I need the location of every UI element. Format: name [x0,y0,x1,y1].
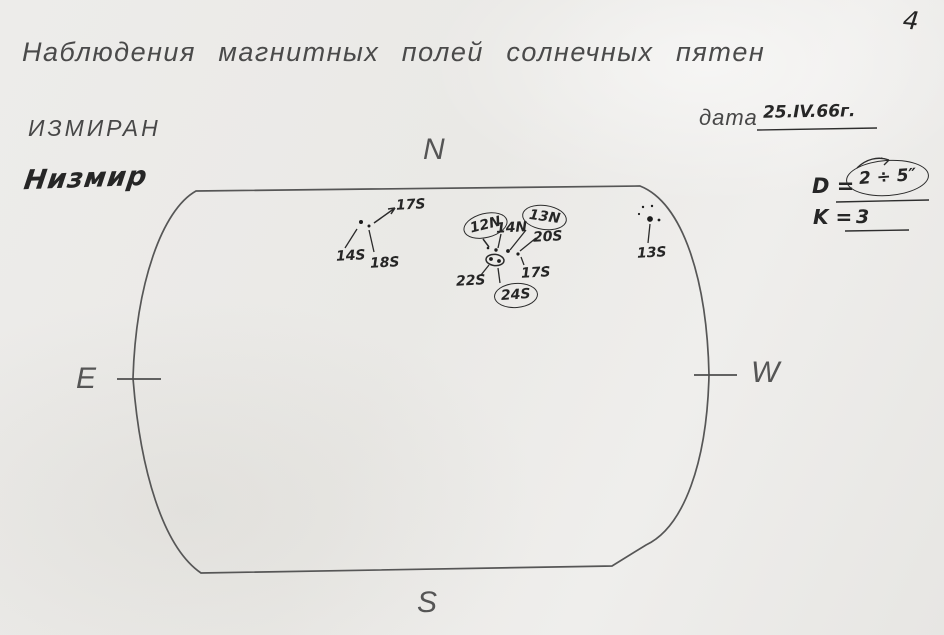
observatory-handwritten-label: Низмир [22,161,150,196]
d-value-circled: 2 ÷ 5″ [845,157,931,199]
observatory-typed-label: ИЗМИРАН [28,115,161,142]
spot-label-22s: 22S [456,273,486,289]
date-label: дата [699,105,758,131]
page-number: 4 [902,5,921,36]
k-label: K = [813,205,852,229]
spot-label-14s-left: 14S [336,248,366,264]
compass-west-label: W [751,356,779,390]
diagram-linework [0,0,944,635]
spot-label-17s-left: 17S [396,197,426,213]
spot-label-20s: 20S [533,229,563,245]
page-title: Наблюдения магнитных полей солнечных пят… [22,37,765,68]
spot-label-17s-center: 17S [521,265,551,281]
k-value: 3 [856,206,869,228]
scanned-observation-sheet: 4 Наблюдения магнитных полей солнечных п… [0,0,944,635]
compass-south-label: S [417,586,437,620]
spot-label-13s-right: 13S [637,245,667,261]
compass-east-label: E [76,362,96,396]
sunspot-group-left [345,208,395,252]
spot-label-14n: 14N [496,220,528,236]
solar-disk-outline [133,186,709,573]
spot-label-18s-left: 18S [370,255,400,271]
date-value: 25.IV.66г. [763,101,856,123]
spot-label-24s-circled: 24S [493,282,538,310]
sunspot-group-right [638,205,660,243]
compass-north-label: N [423,133,445,167]
